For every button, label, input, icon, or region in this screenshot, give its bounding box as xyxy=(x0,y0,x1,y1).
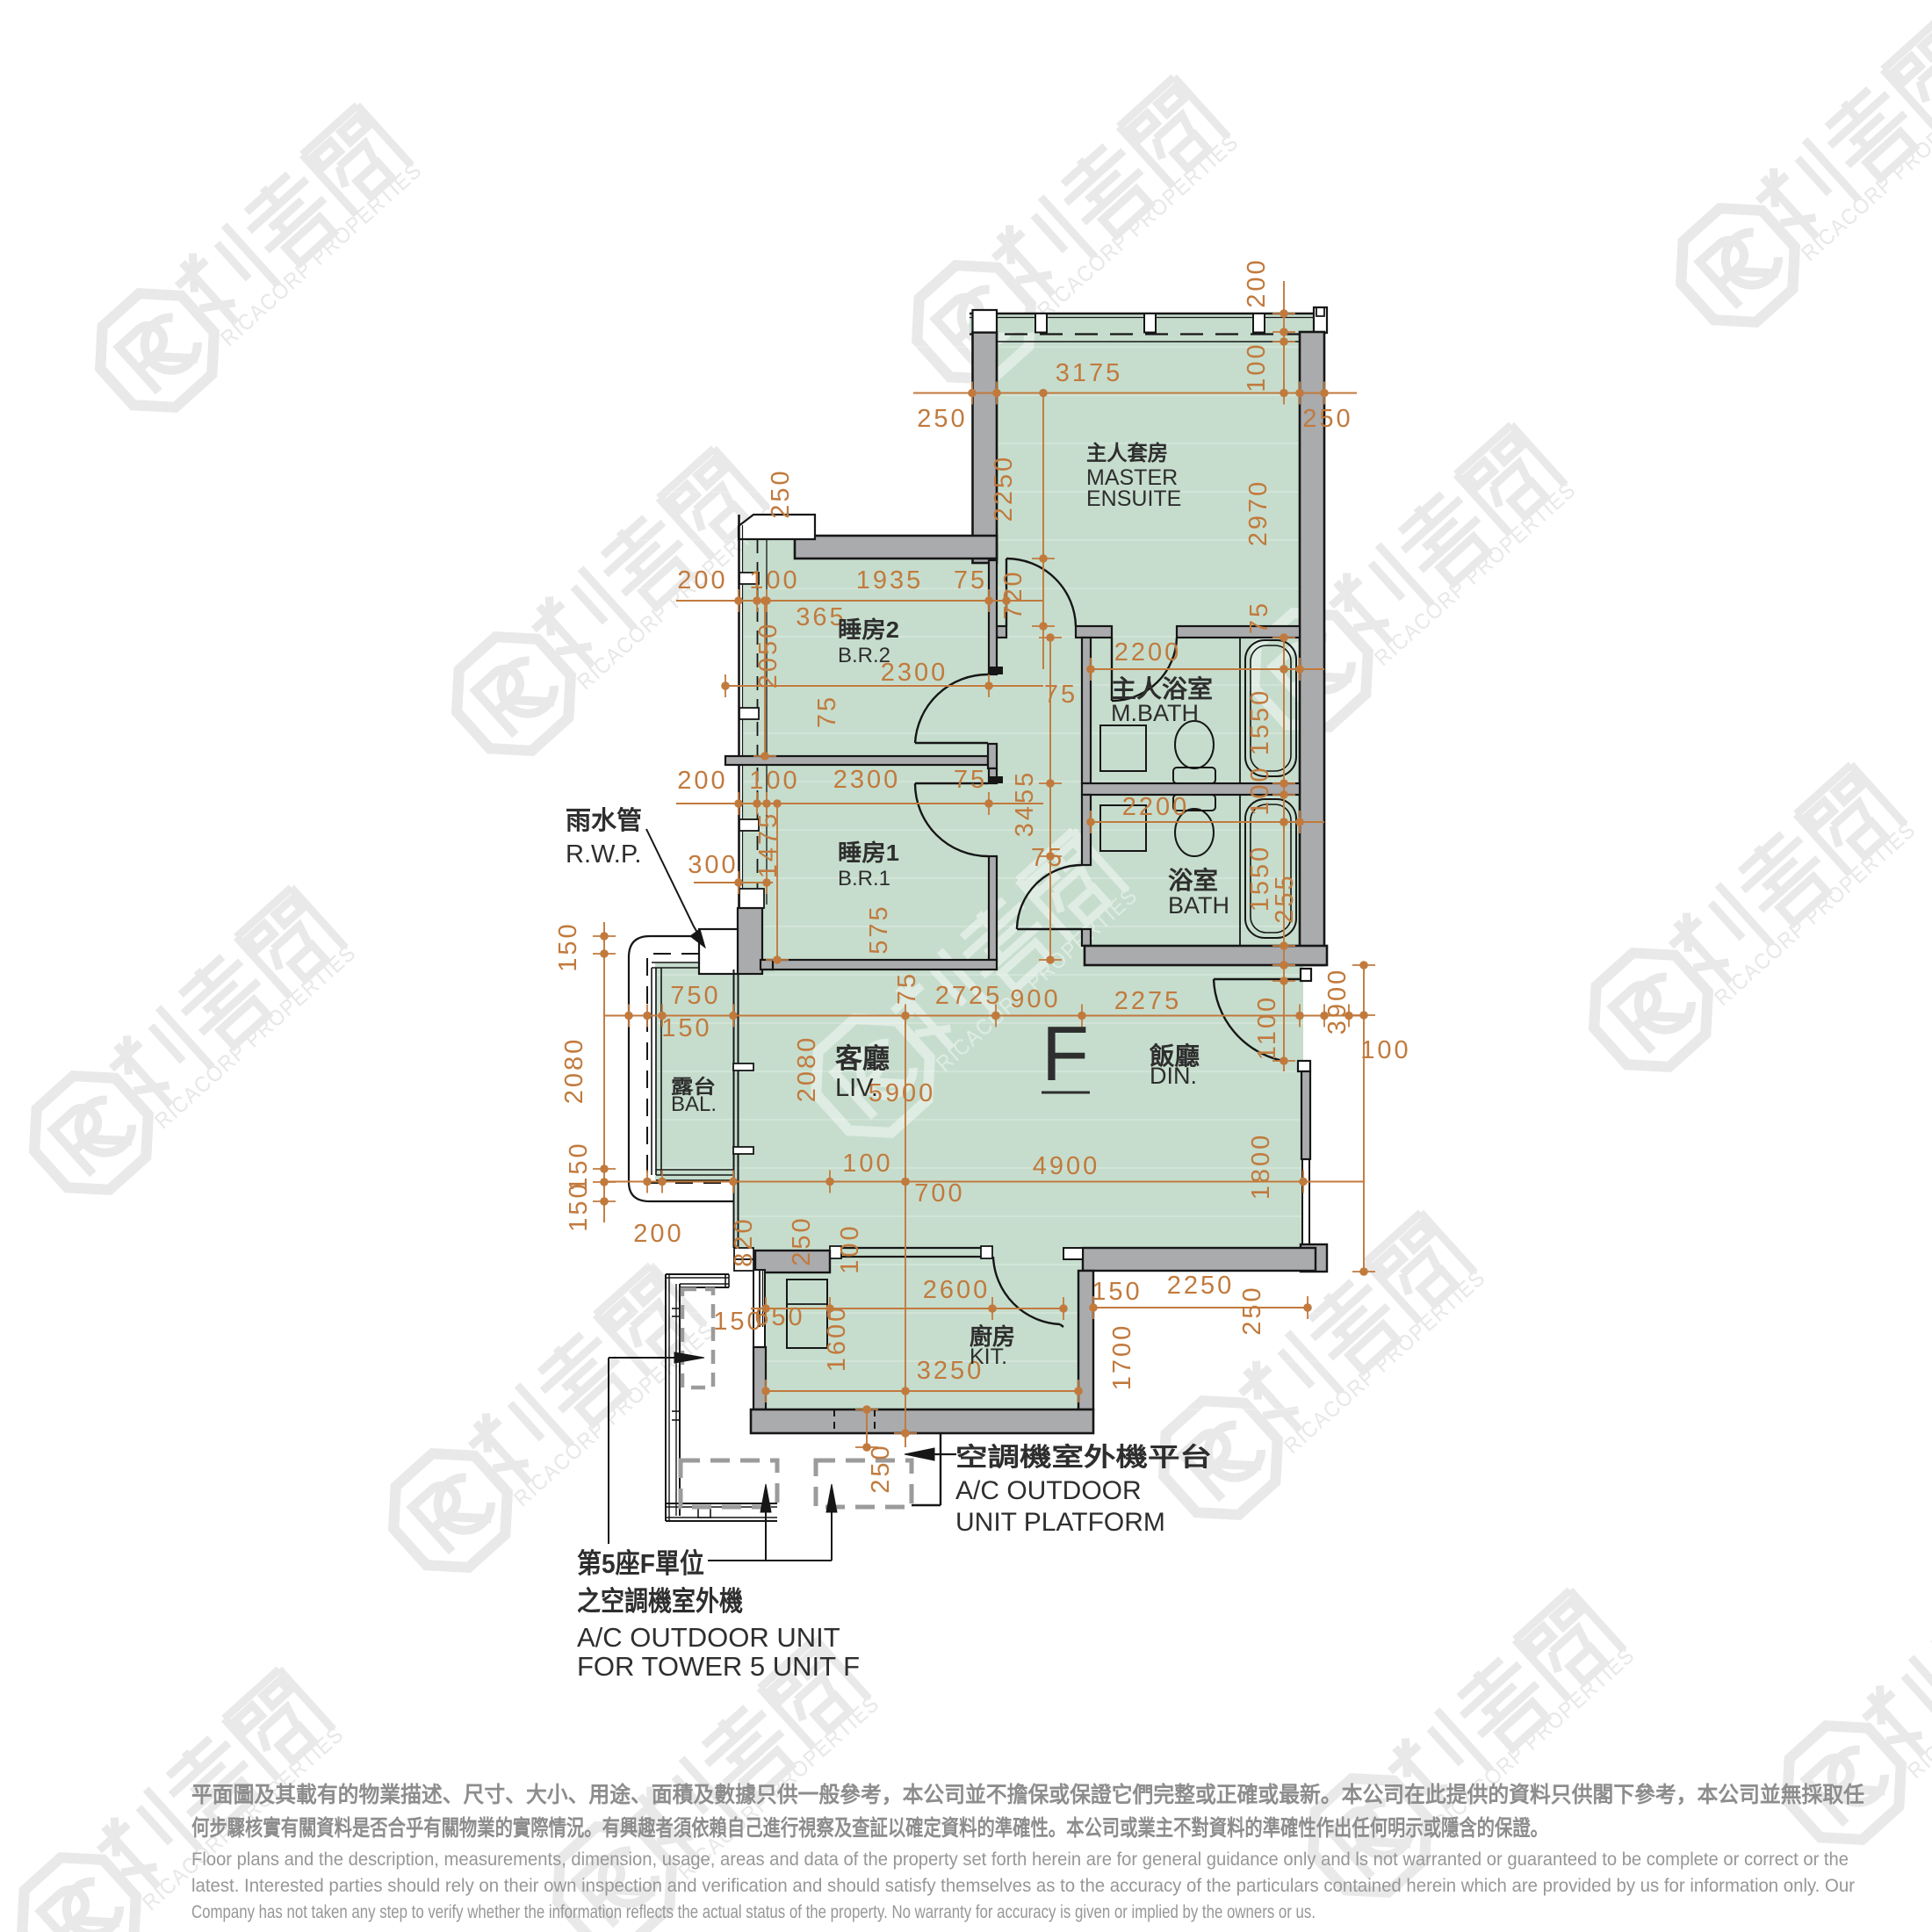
svg-text:2080: 2080 xyxy=(560,1037,588,1105)
svg-text:BAL.: BAL. xyxy=(671,1092,717,1116)
svg-text:2970: 2970 xyxy=(1244,479,1272,547)
svg-text:FOR TOWER 5 UNIT F: FOR TOWER 5 UNIT F xyxy=(577,1651,860,1682)
svg-text:75: 75 xyxy=(1245,601,1273,634)
svg-text:F: F xyxy=(1042,1010,1089,1097)
svg-text:2275: 2275 xyxy=(1114,987,1182,1015)
svg-text:2300: 2300 xyxy=(881,659,948,687)
svg-text:平面圖及其載有的物業描述、尺寸、大小、用途、面積及數據只供一: 平面圖及其載有的物業描述、尺寸、大小、用途、面積及數據只供一般參考，本公司並不擔… xyxy=(191,1782,1864,1807)
svg-text:750: 750 xyxy=(670,982,720,1010)
svg-text:睡房2: 睡房2 xyxy=(838,616,899,643)
svg-text:1700: 1700 xyxy=(1108,1323,1136,1391)
svg-text:1475: 1475 xyxy=(754,811,782,879)
svg-text:1550: 1550 xyxy=(1246,688,1274,756)
svg-text:100: 100 xyxy=(1360,1036,1410,1064)
svg-text:100: 100 xyxy=(836,1223,864,1273)
svg-text:200: 200 xyxy=(677,566,727,595)
svg-text:B.R.1: B.R.1 xyxy=(838,867,890,890)
svg-text:4900: 4900 xyxy=(1033,1152,1100,1180)
svg-text:2725: 2725 xyxy=(935,982,1003,1010)
svg-text:150: 150 xyxy=(661,1014,711,1042)
svg-text:700: 700 xyxy=(914,1179,964,1207)
svg-text:之空調機室外機: 之空調機室外機 xyxy=(577,1586,743,1617)
svg-text:150: 150 xyxy=(554,921,582,971)
svg-text:R.W.P.: R.W.P. xyxy=(566,840,642,869)
svg-text:Company has not taken any step: Company has not taken any step to verify… xyxy=(191,1902,1316,1922)
svg-text:250: 250 xyxy=(767,468,795,518)
svg-text:300: 300 xyxy=(688,851,738,879)
svg-text:A/C OUTDOOR: A/C OUTDOOR xyxy=(955,1476,1142,1505)
svg-text:1100: 1100 xyxy=(1253,995,1281,1060)
svg-text:KIT.: KIT. xyxy=(970,1344,1007,1369)
svg-text:150: 150 xyxy=(1092,1278,1142,1306)
svg-text:200: 200 xyxy=(1243,257,1271,307)
svg-text:250: 250 xyxy=(1302,405,1352,433)
svg-text:75: 75 xyxy=(1044,681,1078,709)
svg-text:75: 75 xyxy=(893,971,921,1005)
svg-text:2600: 2600 xyxy=(923,1276,991,1304)
svg-text:A/C OUTDOOR UNIT: A/C OUTDOOR UNIT xyxy=(577,1622,840,1653)
svg-text:雨水管: 雨水管 xyxy=(566,805,642,835)
svg-text:主人套房: 主人套房 xyxy=(1086,441,1168,465)
svg-text:5900: 5900 xyxy=(869,1079,936,1107)
svg-text:M.BATH: M.BATH xyxy=(1111,700,1199,726)
svg-text:UNIT PLATFORM: UNIT PLATFORM xyxy=(955,1508,1165,1537)
svg-text:睡房1: 睡房1 xyxy=(838,840,899,866)
svg-text:浴室: 浴室 xyxy=(1168,866,1218,894)
svg-text:2200: 2200 xyxy=(1122,793,1190,821)
svg-text:2050: 2050 xyxy=(754,622,782,689)
svg-text:B.R.2: B.R.2 xyxy=(838,644,890,667)
svg-text:820: 820 xyxy=(730,1216,758,1266)
svg-text:主人浴室: 主人浴室 xyxy=(1111,674,1213,703)
svg-text:100: 100 xyxy=(749,566,799,595)
svg-text:latest. Interested parties sho: latest. Interested parties should rely o… xyxy=(191,1876,1855,1896)
svg-text:3175: 3175 xyxy=(1056,359,1123,387)
svg-text:200: 200 xyxy=(633,1220,683,1248)
svg-text:255: 255 xyxy=(1271,873,1299,923)
svg-text:2080: 2080 xyxy=(793,1035,821,1103)
svg-text:LIV.: LIV. xyxy=(835,1074,878,1102)
svg-text:100: 100 xyxy=(1246,765,1274,815)
svg-text:第5座F單位: 第5座F單位 xyxy=(577,1548,704,1579)
svg-text:250: 250 xyxy=(867,1443,895,1493)
svg-text:75: 75 xyxy=(954,766,987,794)
svg-text:BATH: BATH xyxy=(1168,892,1229,919)
svg-text:75: 75 xyxy=(954,566,987,595)
svg-text:650: 650 xyxy=(754,1303,804,1331)
svg-text:250: 250 xyxy=(788,1215,816,1265)
svg-text:2300: 2300 xyxy=(833,766,901,794)
svg-text:150: 150 xyxy=(565,1181,593,1231)
svg-text:DIN.: DIN. xyxy=(1150,1063,1197,1089)
svg-text:575: 575 xyxy=(865,904,893,954)
svg-text:200: 200 xyxy=(677,767,727,795)
svg-text:ENSUITE: ENSUITE xyxy=(1086,487,1181,511)
svg-text:3455: 3455 xyxy=(1011,770,1039,838)
svg-text:Floor plans and the descriptio: Floor plans and the description, measure… xyxy=(191,1849,1849,1870)
svg-text:1935: 1935 xyxy=(856,566,924,595)
svg-text:100: 100 xyxy=(1243,342,1271,392)
svg-text:何步驟核實有關資料是否合乎有關物業的實際情況。有興趣者須依賴: 何步驟核實有關資料是否合乎有關物業的實際情況。有興趣者須依賴自己進行視察及查証以… xyxy=(191,1815,1548,1841)
svg-text:720: 720 xyxy=(999,569,1027,619)
svg-text:100: 100 xyxy=(842,1150,892,1178)
svg-text:2200: 2200 xyxy=(1114,638,1182,667)
svg-text:2250: 2250 xyxy=(1167,1272,1235,1300)
svg-text:250: 250 xyxy=(1238,1285,1266,1335)
svg-text:250: 250 xyxy=(917,405,967,433)
svg-text:75: 75 xyxy=(813,695,841,728)
svg-text:空調機室外機平台: 空調機室外機平台 xyxy=(955,1442,1212,1472)
svg-text:75: 75 xyxy=(1031,844,1064,872)
svg-text:1600: 1600 xyxy=(823,1305,851,1373)
svg-text:1800: 1800 xyxy=(1247,1133,1275,1200)
svg-text:100: 100 xyxy=(749,767,799,795)
svg-text:3900: 3900 xyxy=(1323,968,1352,1035)
svg-text:2250: 2250 xyxy=(990,455,1018,523)
svg-text:客廳: 客廳 xyxy=(835,1043,890,1074)
